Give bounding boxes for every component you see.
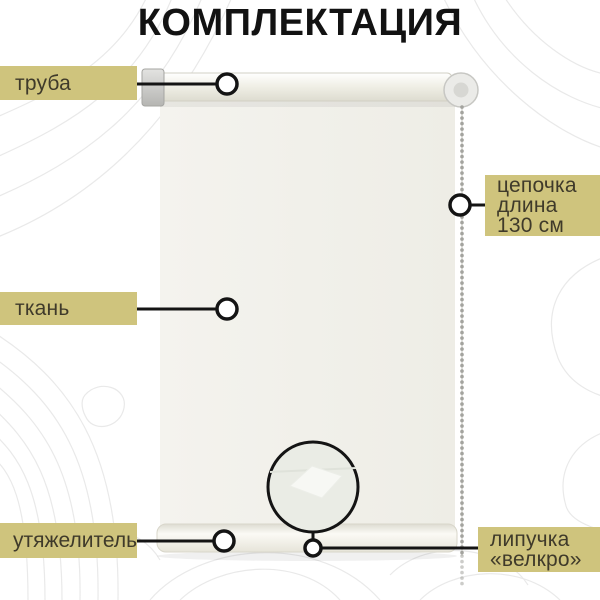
label-chain-line1: цепочка [497, 176, 577, 196]
label-chain-line3: 130 см [497, 216, 564, 236]
velcro-marker [305, 540, 321, 556]
label-chain: цепочка длина 130 см [485, 175, 600, 236]
page-title: КОМПЛЕКТАЦИЯ [0, 2, 600, 45]
label-velcro-line1: липучка [490, 530, 570, 550]
label-tube: труба [0, 66, 137, 100]
label-velcro-line2: «велкро» [490, 550, 582, 570]
weight-marker [214, 531, 234, 551]
label-tube-text: труба [15, 73, 71, 94]
label-velcro: липучка «велкро» [478, 527, 600, 572]
label-fabric: ткань [0, 292, 137, 325]
tube-bracket [142, 69, 164, 106]
fabric-marker [217, 299, 237, 319]
chain-marker [450, 195, 470, 215]
roller-tube [150, 73, 452, 101]
label-weight-text: утяжелитель [13, 530, 137, 551]
label-fabric-text: ткань [15, 298, 69, 319]
label-weight: утяжелитель [0, 523, 137, 558]
chain-clutch-hub [454, 83, 469, 98]
infographic-canvas: КОМПЛЕКТАЦИЯ труба ткань утяжелитель цеп… [0, 0, 600, 600]
label-chain-line2: длина [497, 196, 558, 216]
tube-marker [217, 74, 237, 94]
